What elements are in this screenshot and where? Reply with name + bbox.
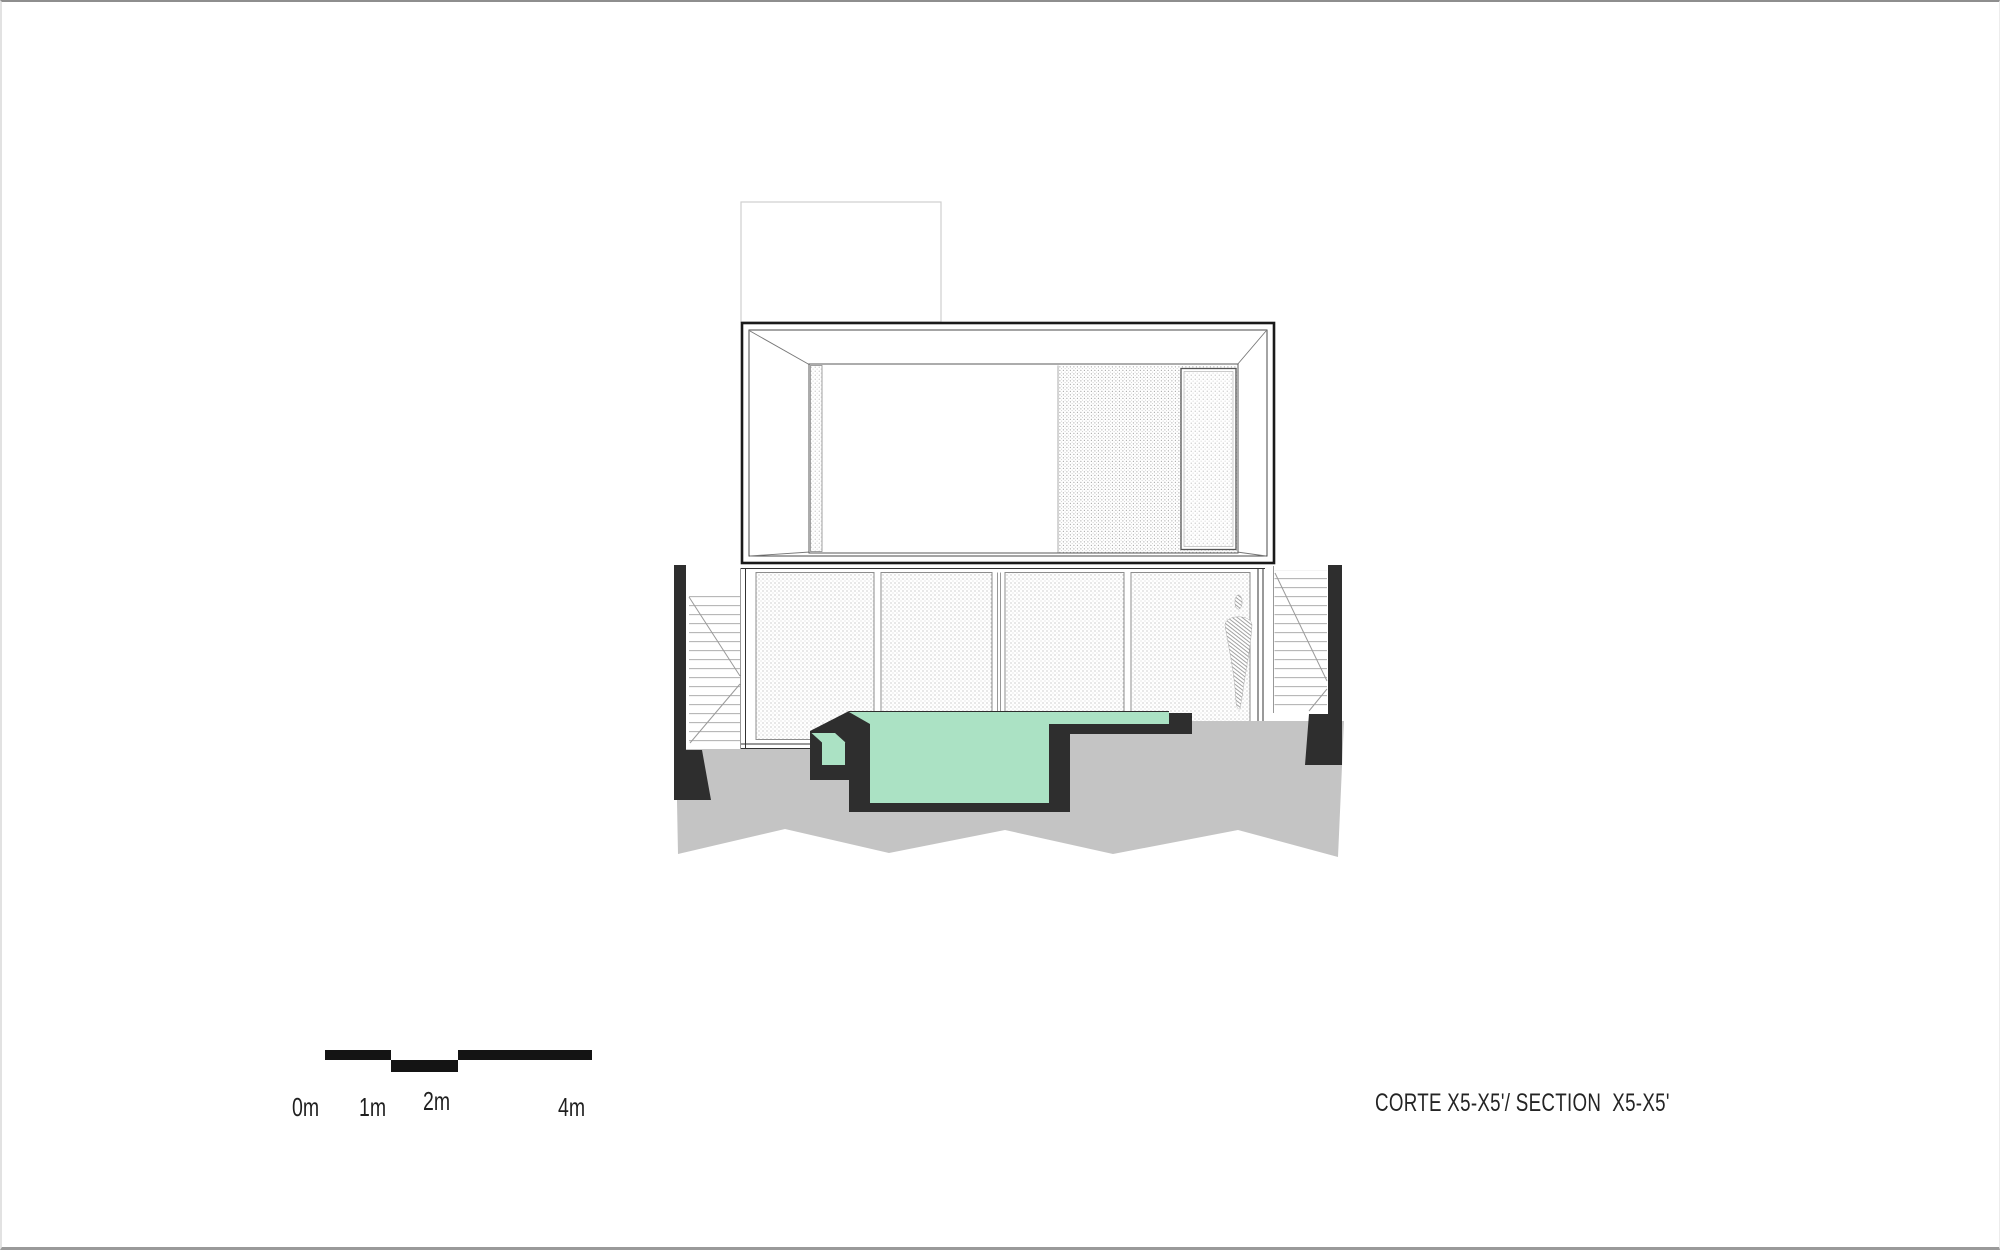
left-stair-louver — [689, 566, 741, 749]
scale-label-1m: 1m — [359, 1094, 386, 1120]
scale-label-4m: 4m — [558, 1094, 585, 1120]
human-figure-head — [1235, 595, 1242, 609]
roof-volume-outline — [741, 202, 941, 322]
facade-left-frame — [741, 568, 746, 749]
basin-water — [822, 742, 845, 765]
drawing-sheet: 0m 1m 2m 4m CORTE X5-X5'/ SECTION X5-X5' — [0, 0, 2000, 1250]
drawing-title: CORTE X5-X5'/ SECTION X5-X5' — [1375, 1091, 1670, 1116]
pool-water-surface — [849, 712, 1169, 724]
scale-bar-segment-1 — [325, 1050, 391, 1060]
scale-bar — [325, 1050, 592, 1072]
upper-floor-box — [742, 323, 1274, 563]
scale-bar-segment-2 — [391, 1060, 458, 1072]
scale-label-2m: 2m — [423, 1088, 450, 1114]
right-stair-louver — [1273, 566, 1327, 714]
scale-label-0m: 0m — [292, 1094, 319, 1120]
section-drawing — [2, 2, 2000, 1250]
upper-left-column-strip — [811, 366, 823, 552]
left-louver-lines — [689, 590, 740, 748]
upper-door-panel-hatch — [1184, 372, 1233, 547]
pool-water-deep — [870, 724, 1049, 803]
right-louver-lines — [1275, 570, 1328, 713]
scale-bar-segment-3 — [458, 1050, 592, 1060]
